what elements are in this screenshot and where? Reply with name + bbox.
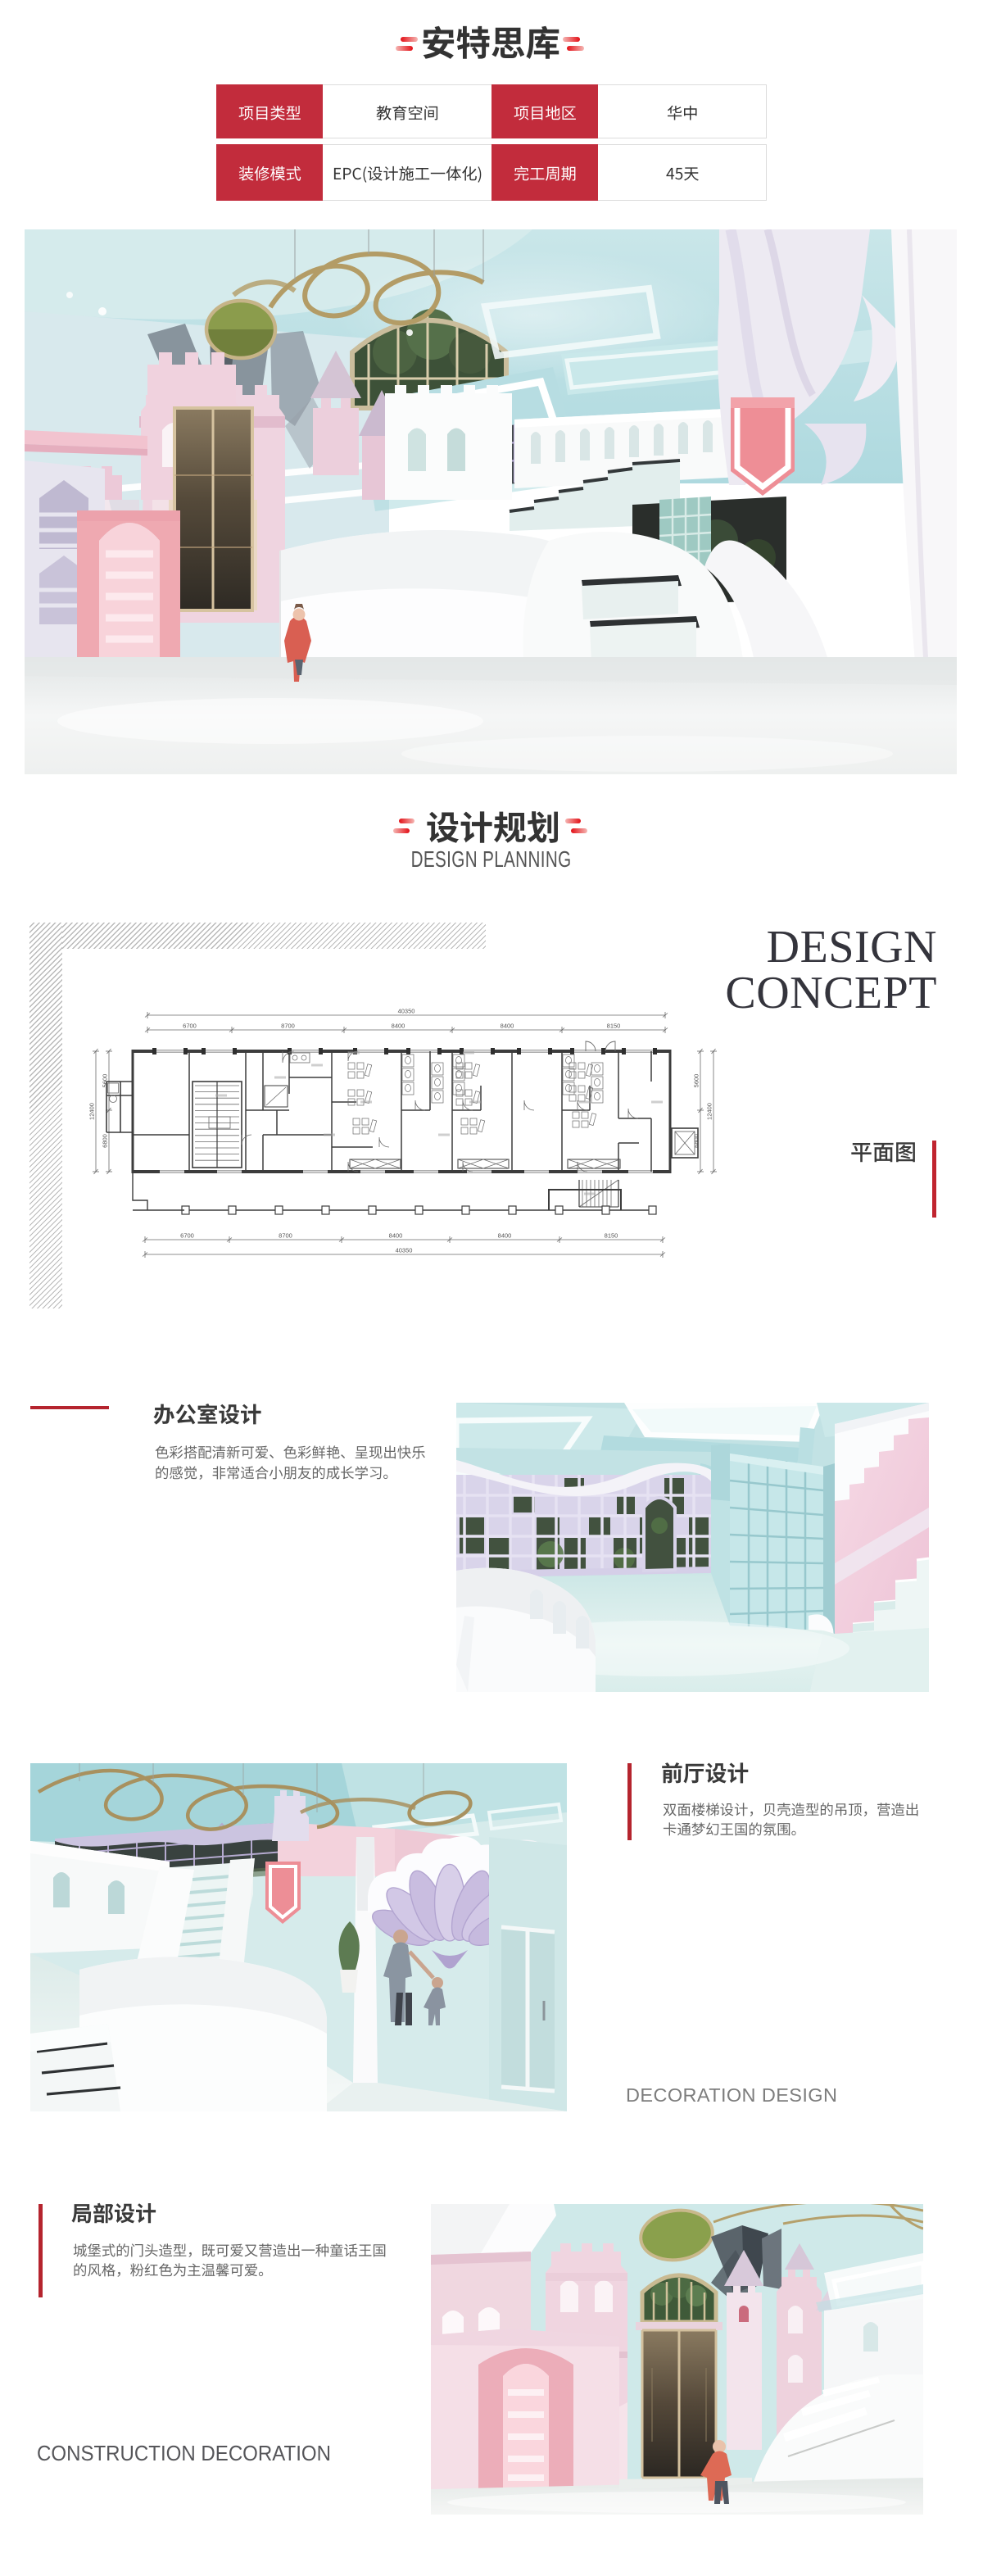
svg-text:8400: 8400 [392, 1023, 405, 1030]
svg-text:8700: 8700 [279, 1232, 292, 1240]
svg-text:12400: 12400 [88, 1103, 96, 1120]
svg-text:8150: 8150 [607, 1023, 621, 1030]
svg-text:8400: 8400 [389, 1232, 403, 1240]
svg-text:5600: 5600 [693, 1074, 700, 1088]
svg-text:8400: 8400 [498, 1232, 512, 1240]
svg-text:40350: 40350 [396, 1247, 413, 1254]
svg-text:8700: 8700 [281, 1023, 295, 1030]
svg-text:8400: 8400 [501, 1023, 514, 1030]
svg-text:40350: 40350 [398, 1008, 415, 1015]
svg-text:12400: 12400 [706, 1103, 713, 1120]
svg-text:6800: 6800 [102, 1134, 109, 1148]
svg-text:6800: 6800 [693, 1134, 700, 1148]
svg-text:6700: 6700 [180, 1232, 194, 1240]
svg-text:6700: 6700 [183, 1023, 197, 1030]
svg-text:8150: 8150 [605, 1232, 618, 1240]
